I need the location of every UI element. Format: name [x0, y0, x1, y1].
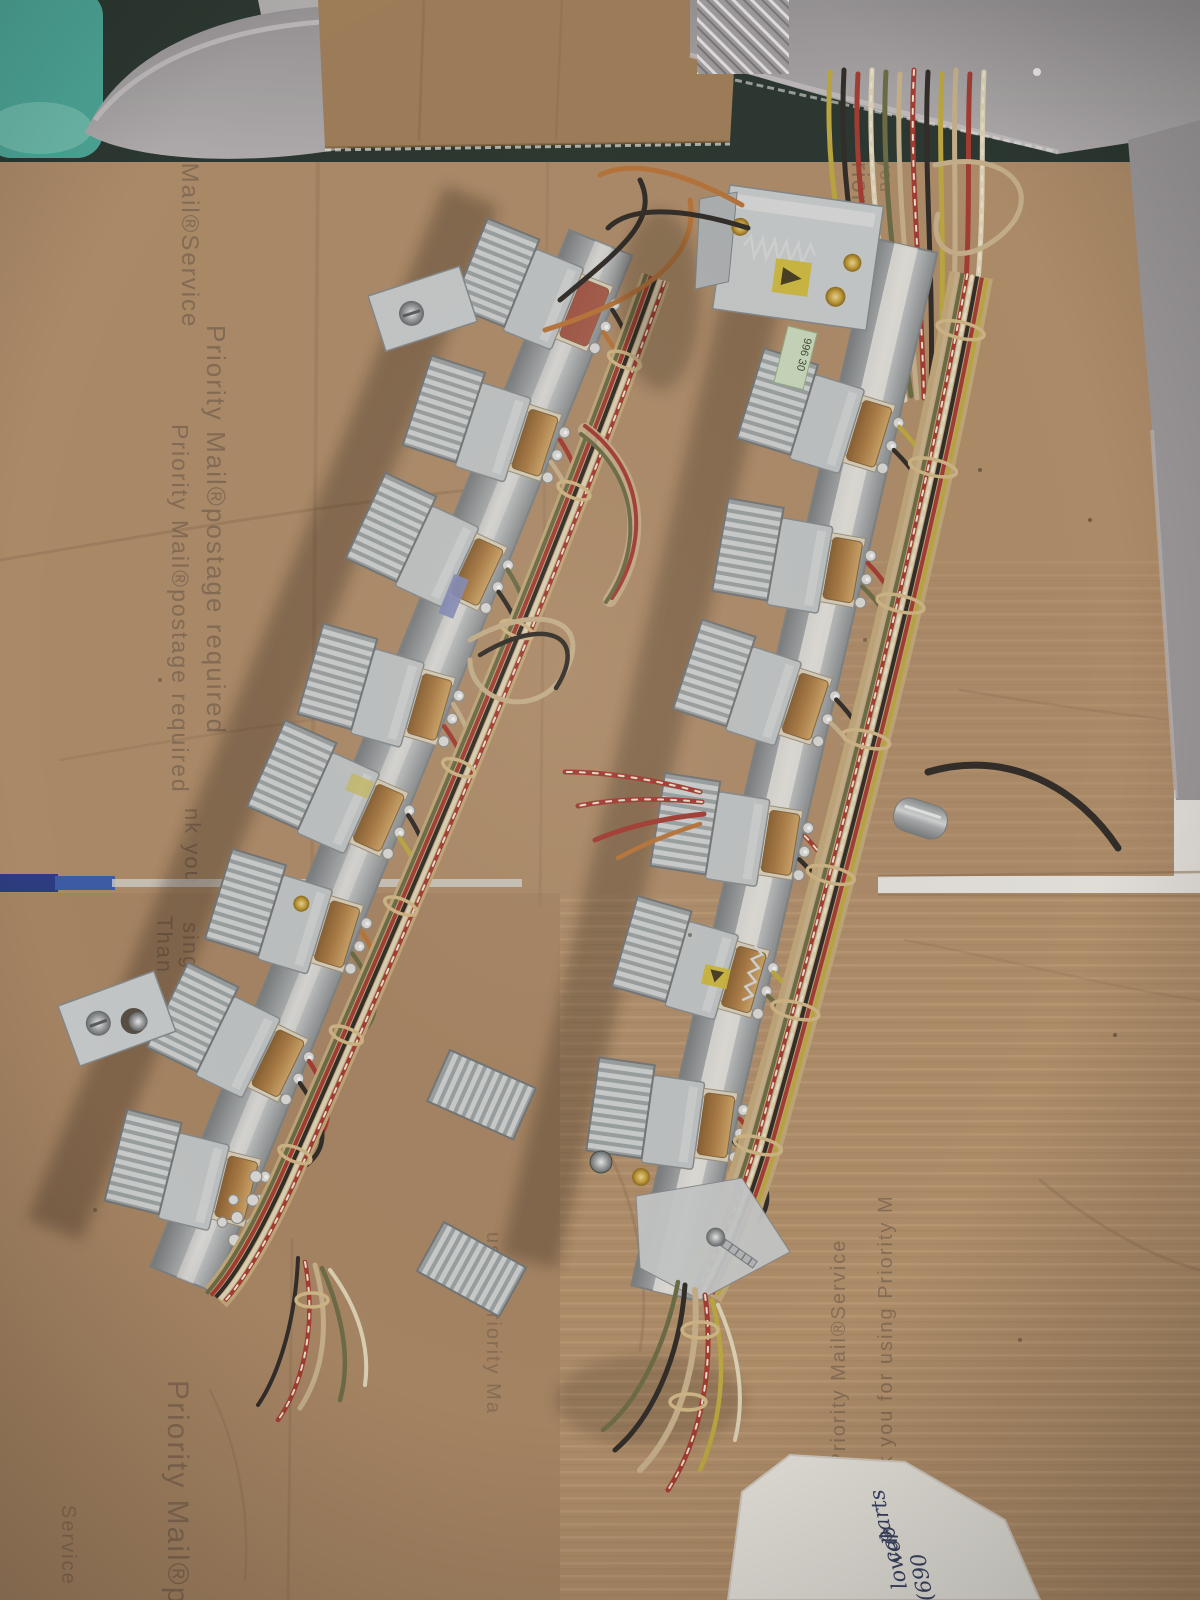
relay-banks-photo: y Mail®Service Priority Mail®postage req… [0, 0, 1200, 1600]
photo-grading [0, 0, 1200, 1600]
photo-stage: y Mail®Service Priority Mail®postage req… [0, 0, 1200, 1600]
